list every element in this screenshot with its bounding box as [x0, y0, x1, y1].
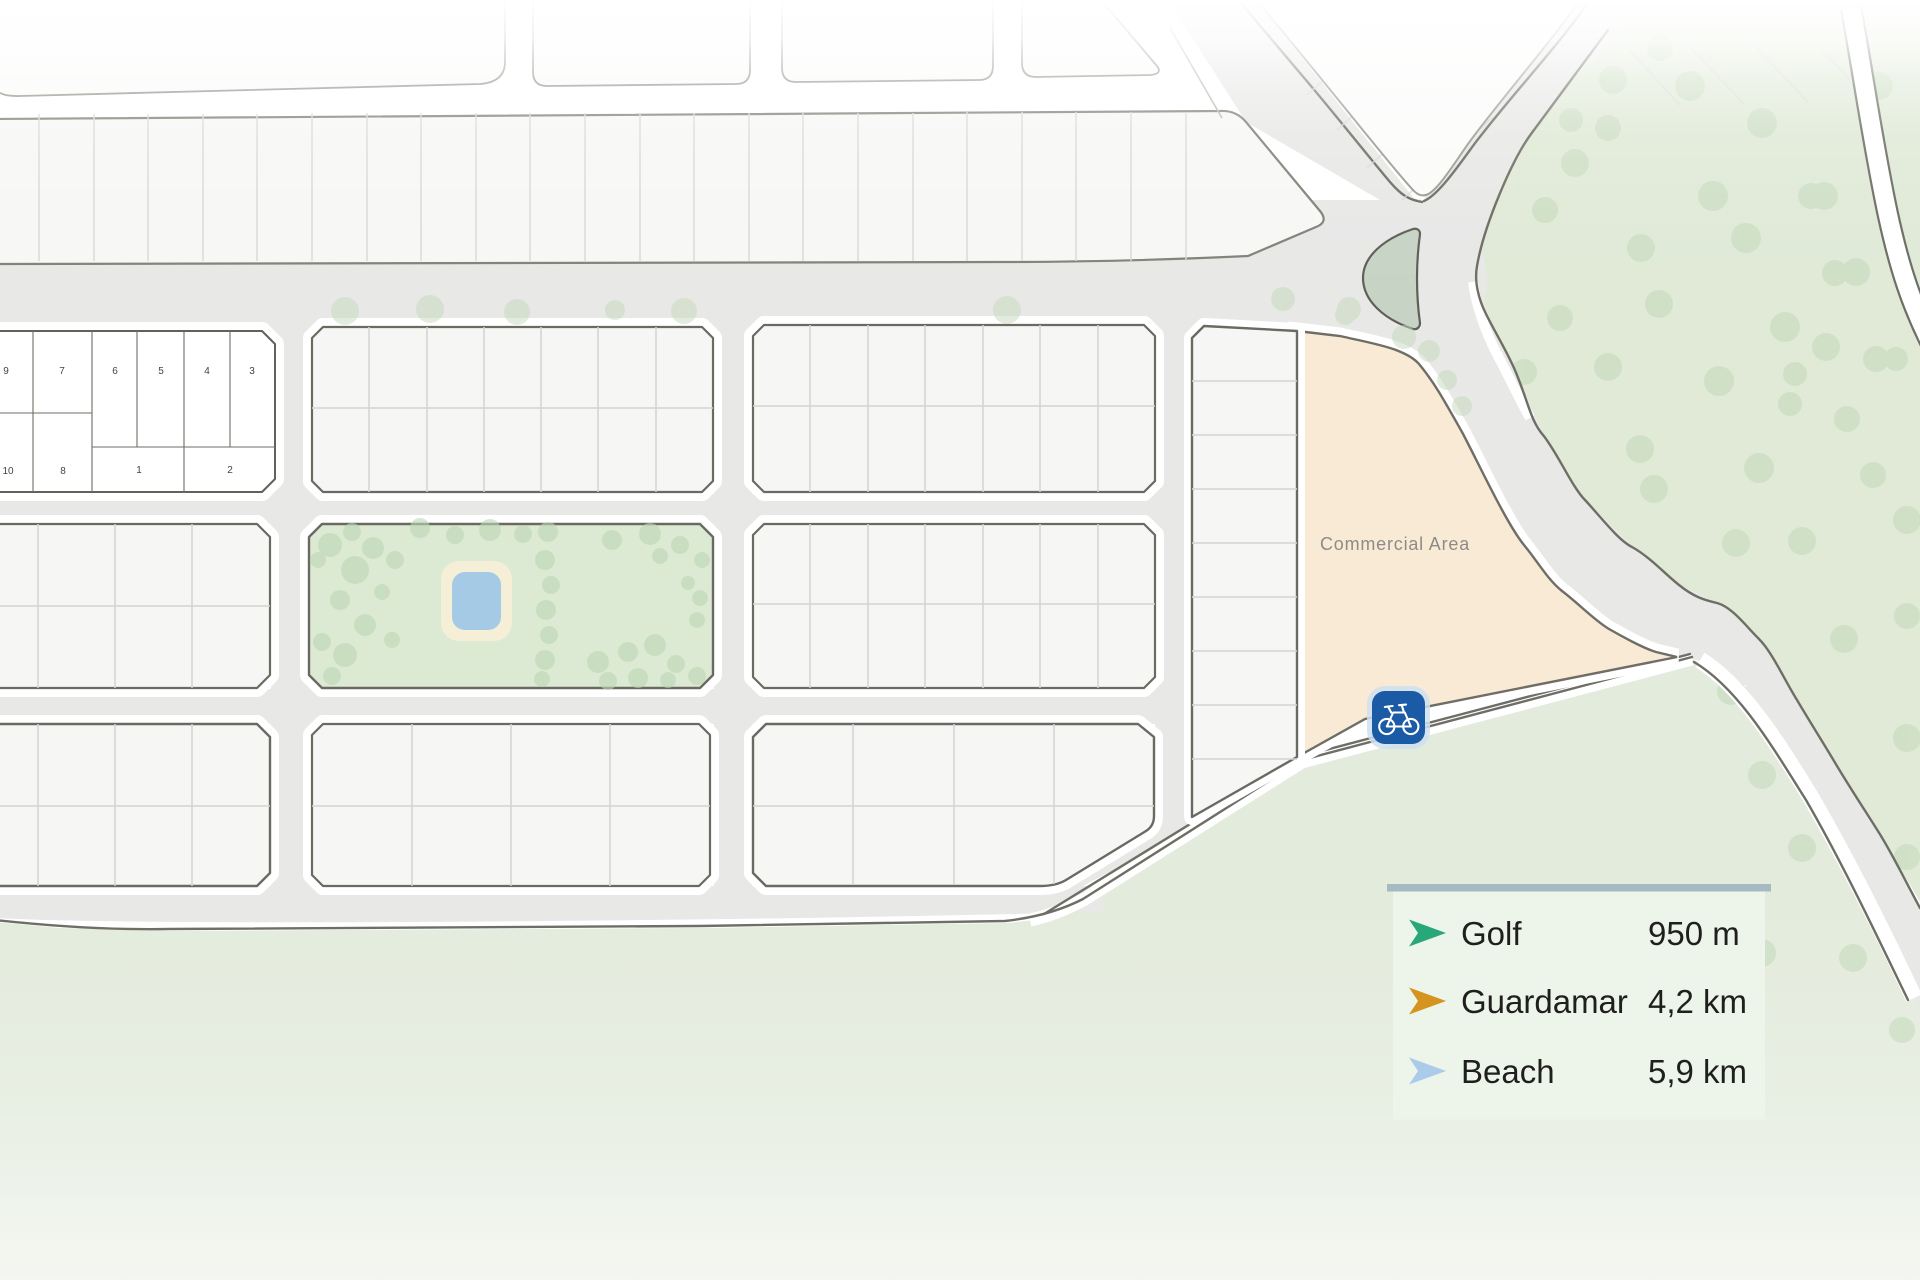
svg-text:Beach: Beach	[1461, 1053, 1555, 1090]
svg-text:950 m: 950 m	[1648, 915, 1740, 952]
svg-text:5,9 km: 5,9 km	[1648, 1053, 1747, 1090]
svg-text:8: 8	[60, 466, 66, 477]
svg-text:4,2 km: 4,2 km	[1648, 983, 1747, 1020]
svg-text:2: 2	[227, 465, 233, 476]
svg-text:Guardamar: Guardamar	[1461, 983, 1628, 1020]
svg-text:9: 9	[3, 366, 9, 377]
svg-text:10: 10	[2, 466, 14, 477]
svg-text:6: 6	[112, 366, 118, 377]
svg-text:Golf: Golf	[1461, 915, 1522, 952]
svg-text:5: 5	[158, 366, 164, 377]
svg-text:7: 7	[59, 366, 65, 377]
svg-text:1: 1	[136, 465, 142, 476]
svg-text:3: 3	[249, 366, 255, 377]
svg-text:Commercial Area: Commercial Area	[1320, 534, 1470, 554]
svg-text:4: 4	[204, 366, 210, 377]
